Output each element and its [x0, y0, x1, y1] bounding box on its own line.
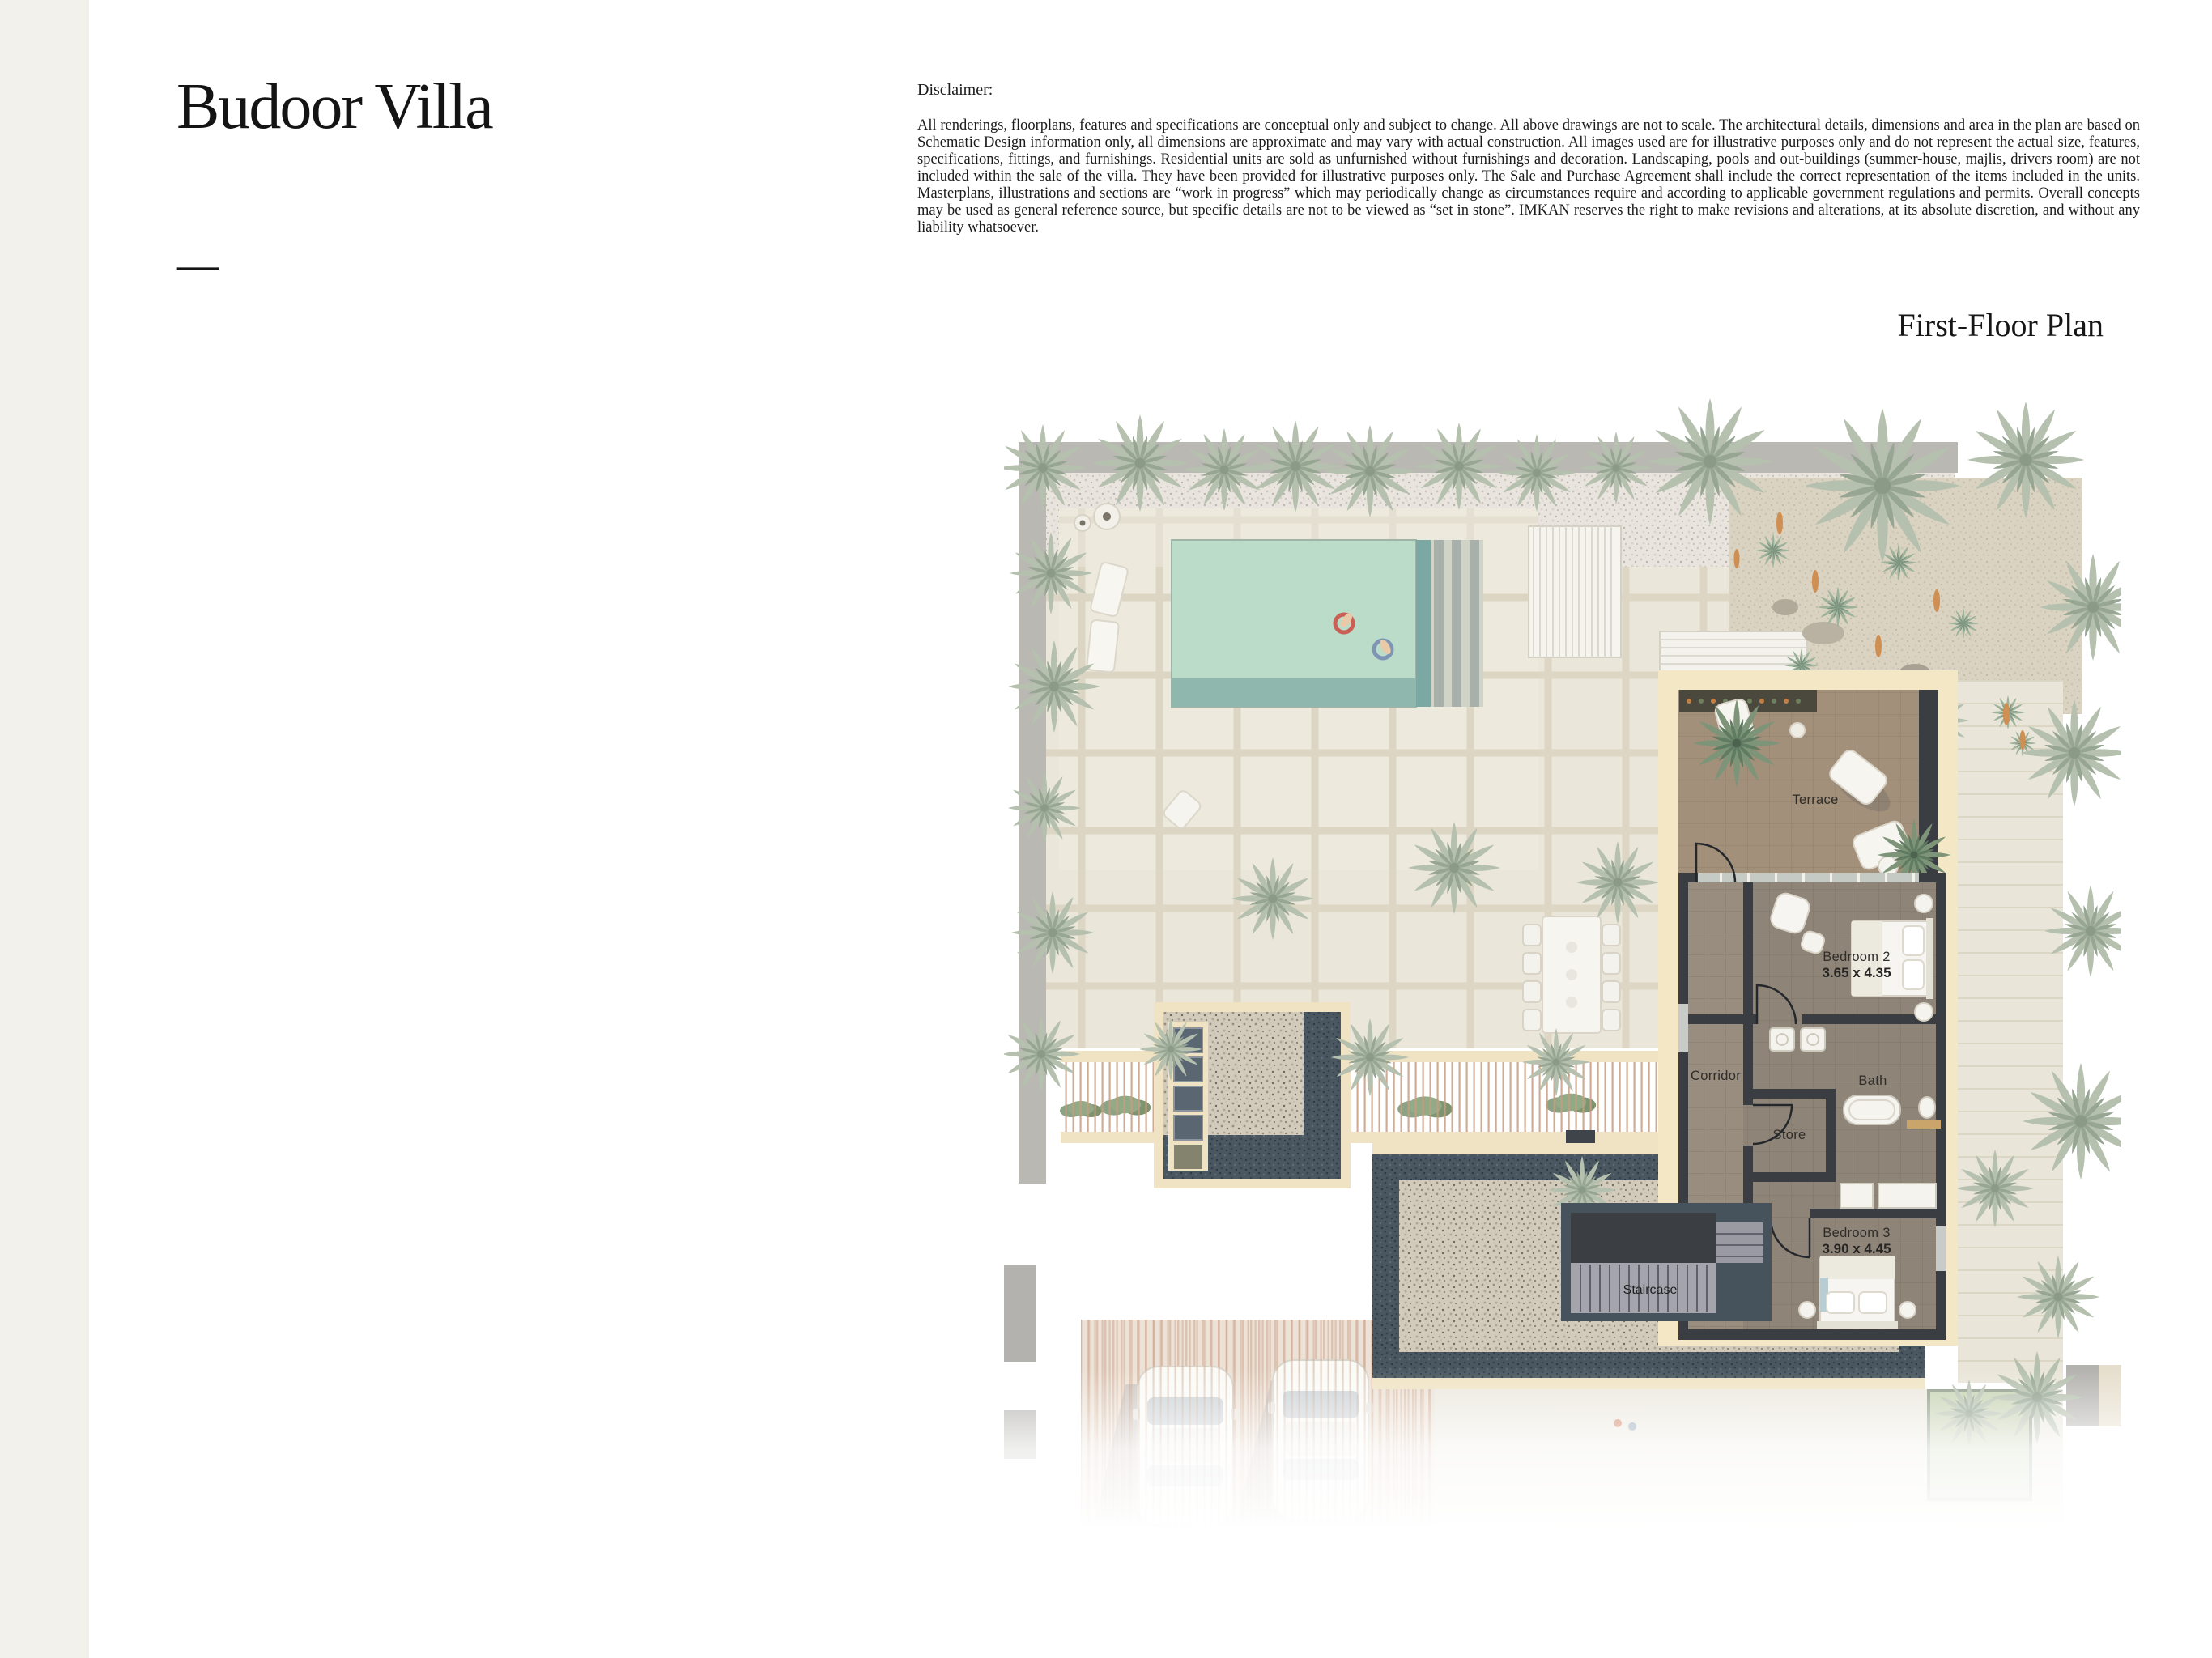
label-bath: Bath [1858, 1073, 1887, 1088]
wall-block [1004, 1265, 1036, 1362]
label-staircase: Staircase [1623, 1283, 1678, 1297]
disclaimer-heading: Disclaimer: [917, 81, 2140, 100]
plan-heading: First-Floor Plan [1898, 306, 2104, 344]
terrace-side-table [1790, 723, 1805, 738]
pillow [1827, 1292, 1854, 1313]
page-title: Budoor Villa [177, 74, 492, 139]
sink [1801, 1028, 1825, 1051]
window [1678, 1004, 1688, 1052]
left-margin-strip [0, 0, 89, 1658]
label-bedroom3: Bedroom 3 [1823, 1226, 1890, 1240]
staircase: Staircase [1561, 1203, 1772, 1321]
pillow [1903, 926, 1924, 955]
disclaimer-block: Disclaimer: All renderings, floorplans, … [917, 81, 2140, 236]
dims-bedroom3: 3.90 x 4.45 [1822, 1241, 1891, 1256]
dims-bedroom2: 3.65 x 4.35 [1822, 965, 1891, 980]
wardrobe [1840, 1184, 1873, 1208]
swimming-pool [1172, 540, 1483, 707]
label-store: Store [1773, 1128, 1806, 1142]
room-terrace [1678, 690, 1950, 891]
pouf [1915, 895, 1933, 912]
sink [1770, 1028, 1794, 1051]
floor-plan-illustration: Staircase Terrace Bedroom 2 3.65 x 4.35 … [1004, 364, 2121, 1530]
window [1936, 1226, 1946, 1271]
toilet [1919, 1097, 1935, 1118]
wood-vanity [1907, 1120, 1941, 1129]
bottom-fade [1004, 1368, 2121, 1530]
pouf [1915, 1003, 1933, 1021]
label-bedroom2: Bedroom 2 [1823, 950, 1890, 964]
brochure-page: Budoor Villa — Disclaimer: All rendering… [0, 0, 2212, 1658]
pillow [1859, 1292, 1887, 1313]
terrace-glazing [1698, 873, 1919, 882]
wardrobe [1878, 1184, 1936, 1208]
pillow [1903, 960, 1924, 989]
pouf [1899, 1302, 1916, 1318]
label-corridor: Corridor [1691, 1069, 1741, 1083]
disclaimer-body: All renderings, floorplans, features and… [917, 117, 2140, 236]
pouf [1799, 1302, 1815, 1318]
title-divider: — [177, 244, 219, 287]
label-terrace: Terrace [1792, 793, 1838, 807]
